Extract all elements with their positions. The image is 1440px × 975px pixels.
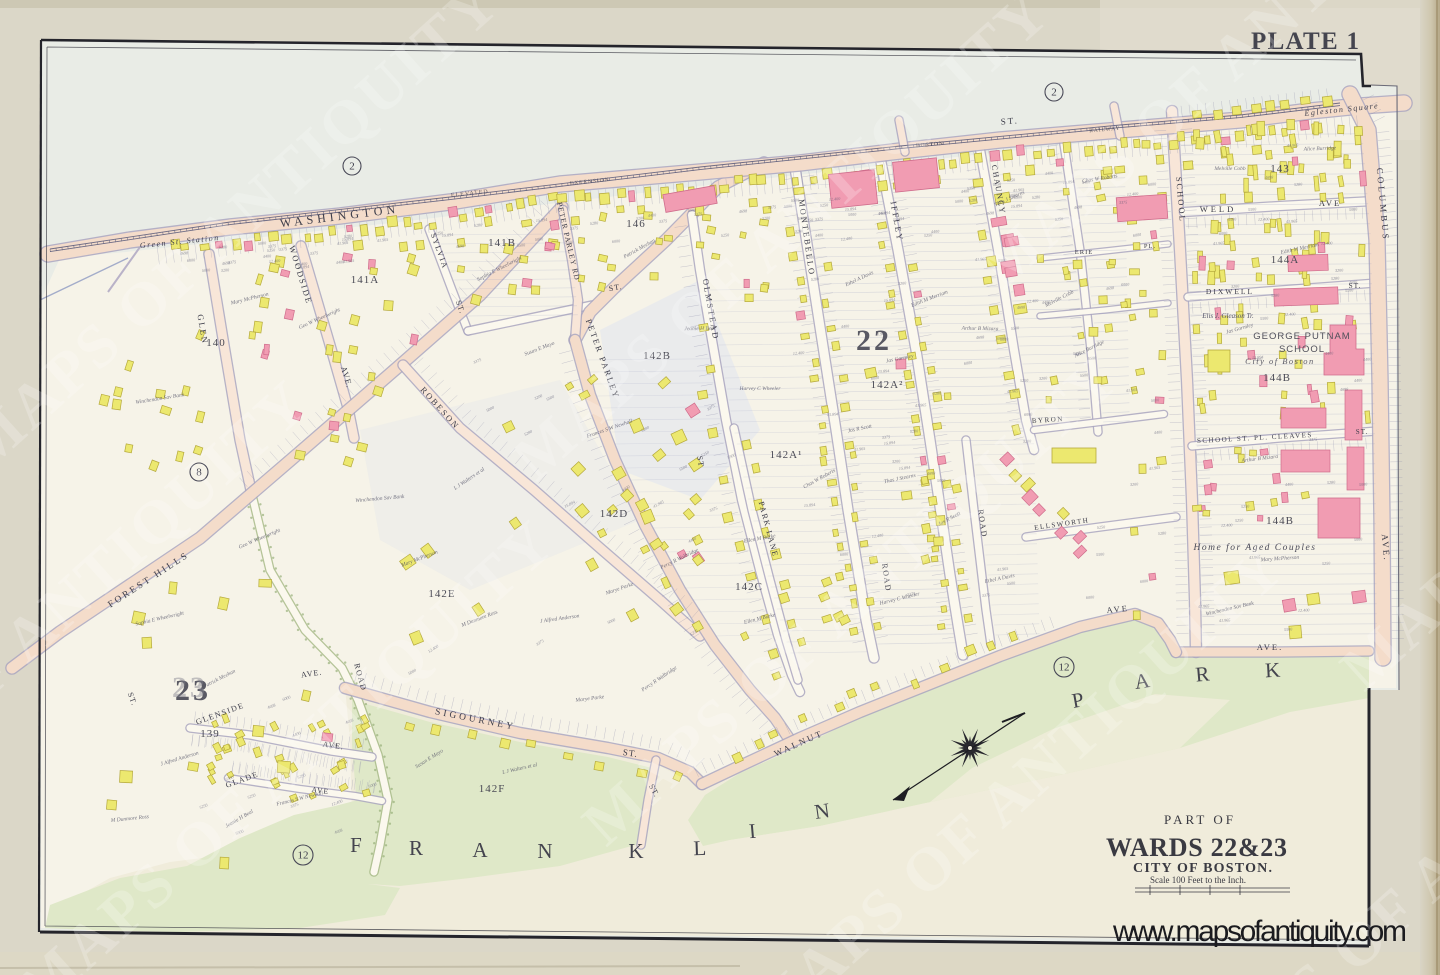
svg-text:3200: 3200 bbox=[1335, 268, 1345, 273]
svg-text:Alice Burridge: Alice Burridge bbox=[1303, 145, 1337, 152]
svg-text:140: 140 bbox=[206, 337, 226, 349]
svg-text:6000: 6000 bbox=[612, 238, 622, 244]
svg-text:K: K bbox=[1264, 658, 1280, 683]
svg-text:3375: 3375 bbox=[310, 250, 319, 256]
svg-text:3375: 3375 bbox=[279, 246, 288, 252]
svg-text:5250: 5250 bbox=[1241, 504, 1251, 509]
svg-text:5500: 5500 bbox=[688, 207, 698, 213]
svg-text:6000: 6000 bbox=[1219, 231, 1229, 236]
svg-text:4698: 4698 bbox=[1340, 387, 1350, 392]
svg-text:5000: 5000 bbox=[1354, 537, 1364, 542]
svg-text:5250: 5250 bbox=[267, 247, 277, 253]
svg-text:SCHOOL: SCHOOL bbox=[1279, 344, 1325, 355]
svg-text:4698: 4698 bbox=[976, 334, 986, 340]
svg-text:3200: 3200 bbox=[892, 459, 902, 464]
svg-text:5280: 5280 bbox=[969, 197, 979, 203]
svg-text:5280: 5280 bbox=[910, 428, 920, 434]
svg-text:4400: 4400 bbox=[1363, 357, 1373, 362]
svg-text:R: R bbox=[409, 836, 423, 860]
svg-text:5280: 5280 bbox=[474, 222, 484, 228]
svg-text:5250: 5250 bbox=[967, 185, 977, 191]
svg-text:5280: 5280 bbox=[1327, 480, 1337, 485]
svg-text:3375: 3375 bbox=[982, 592, 991, 598]
svg-text:15.894: 15.894 bbox=[804, 502, 816, 508]
svg-text:5000: 5000 bbox=[1359, 482, 1369, 487]
svg-text:4400: 4400 bbox=[931, 229, 940, 234]
svg-text:A: A bbox=[472, 838, 488, 862]
svg-text:ST.: ST. bbox=[1356, 428, 1368, 436]
svg-text:WELD: WELD bbox=[1200, 204, 1237, 214]
svg-text:5500: 5500 bbox=[1248, 207, 1258, 212]
svg-text:5000: 5000 bbox=[1151, 397, 1161, 403]
svg-text:5500: 5500 bbox=[1096, 552, 1106, 557]
svg-text:4400: 4400 bbox=[1154, 429, 1164, 435]
svg-text:142A¹: 142A¹ bbox=[770, 449, 803, 461]
svg-text:3200: 3200 bbox=[898, 280, 908, 286]
svg-text:4698: 4698 bbox=[986, 210, 996, 216]
svg-text:41.965: 41.965 bbox=[1287, 142, 1299, 148]
svg-text:5000: 5000 bbox=[955, 198, 965, 204]
svg-text:12.400: 12.400 bbox=[1321, 240, 1334, 246]
svg-text:3375: 3375 bbox=[659, 218, 668, 224]
svg-text:144A: 144A bbox=[1271, 254, 1299, 266]
svg-text:139: 139 bbox=[200, 728, 220, 740]
svg-text:4698: 4698 bbox=[739, 208, 749, 214]
svg-text:4400: 4400 bbox=[1042, 299, 1052, 305]
svg-text:41.965: 41.965 bbox=[915, 402, 927, 408]
svg-text:4400: 4400 bbox=[648, 212, 658, 218]
svg-text:4698: 4698 bbox=[456, 243, 466, 249]
svg-text:ST.: ST. bbox=[1348, 281, 1361, 290]
svg-text:6000: 6000 bbox=[1148, 181, 1158, 187]
svg-text:4400: 4400 bbox=[1285, 482, 1295, 487]
svg-text:Melville Cobb: Melville Cobb bbox=[1213, 166, 1246, 172]
svg-text:23: 23 bbox=[172, 671, 208, 704]
svg-text:5250: 5250 bbox=[1097, 524, 1107, 530]
svg-text:142C: 142C bbox=[735, 581, 763, 593]
svg-text:Arthur B Mizara: Arthur B Mizara bbox=[961, 326, 999, 333]
svg-text:3200: 3200 bbox=[1130, 481, 1140, 487]
svg-text:12.400: 12.400 bbox=[1221, 522, 1234, 528]
svg-text:142D: 142D bbox=[600, 508, 628, 520]
svg-text:6000: 6000 bbox=[1121, 282, 1130, 287]
svg-text:141A: 141A bbox=[351, 274, 379, 286]
svg-text:12: 12 bbox=[298, 850, 309, 862]
svg-text:2: 2 bbox=[1051, 87, 1057, 99]
svg-text:ERIE: ERIE bbox=[1075, 249, 1093, 256]
svg-text:41.965: 41.965 bbox=[1213, 240, 1225, 246]
svg-text:Harvey C Wheeler: Harvey C Wheeler bbox=[739, 386, 782, 392]
svg-text:5500: 5500 bbox=[1260, 316, 1270, 321]
svg-text:WARDS 22&23: WARDS 22&23 bbox=[1106, 833, 1288, 862]
svg-text:22: 22 bbox=[856, 324, 892, 357]
svg-text:DIXWELL: DIXWELL bbox=[1206, 287, 1254, 296]
svg-text:144B: 144B bbox=[1266, 515, 1294, 527]
svg-text:City of Boston: City of Boston bbox=[1245, 356, 1315, 366]
svg-text:Scale 100 Feet to the Inch.: Scale 100 Feet to the Inch. bbox=[1150, 875, 1246, 885]
svg-text:5280: 5280 bbox=[1271, 293, 1281, 298]
svg-text:CITY OF BOSTON.: CITY OF BOSTON. bbox=[1133, 861, 1273, 876]
svg-text:4400: 4400 bbox=[1354, 378, 1364, 383]
svg-text:PL.: PL. bbox=[1144, 243, 1156, 250]
svg-text:12.400: 12.400 bbox=[1258, 216, 1271, 222]
svg-text:5000: 5000 bbox=[535, 236, 545, 242]
svg-text:5250: 5250 bbox=[1322, 561, 1332, 566]
svg-text:5000: 5000 bbox=[1349, 207, 1359, 212]
svg-text:142A²: 142A² bbox=[871, 379, 904, 391]
svg-text:141B: 141B bbox=[488, 237, 516, 249]
svg-text:41.965: 41.965 bbox=[1286, 218, 1298, 224]
svg-text:5500: 5500 bbox=[517, 242, 527, 248]
svg-text:4698: 4698 bbox=[927, 471, 937, 476]
svg-text:12.400: 12.400 bbox=[1284, 311, 1297, 317]
svg-text:5280: 5280 bbox=[1294, 182, 1304, 187]
svg-text:AVE: AVE bbox=[1319, 198, 1341, 208]
svg-text:F: F bbox=[350, 833, 362, 857]
svg-text:143: 143 bbox=[1270, 163, 1290, 175]
svg-text:5280: 5280 bbox=[933, 390, 943, 396]
svg-text:5000: 5000 bbox=[1009, 192, 1019, 198]
svg-text:144B: 144B bbox=[1263, 372, 1291, 384]
svg-text:5500: 5500 bbox=[1007, 580, 1017, 586]
svg-text:5280: 5280 bbox=[1158, 530, 1168, 536]
svg-text:Elis J. Gleason Tr.: Elis J. Gleason Tr. bbox=[1201, 312, 1254, 320]
svg-text:4400: 4400 bbox=[1325, 351, 1335, 356]
svg-text:5280: 5280 bbox=[590, 220, 600, 226]
svg-text:12.400: 12.400 bbox=[1298, 607, 1311, 613]
svg-text:N: N bbox=[537, 839, 552, 863]
svg-text:L: L bbox=[693, 836, 707, 860]
svg-text:41.965: 41.965 bbox=[1007, 388, 1019, 394]
svg-text:GEORGE PUTNAM: GEORGE PUTNAM bbox=[1253, 331, 1350, 342]
svg-text:AVE.: AVE. bbox=[1257, 642, 1284, 652]
svg-text:4400: 4400 bbox=[841, 323, 851, 329]
svg-text:6000: 6000 bbox=[840, 551, 850, 557]
svg-text:3375: 3375 bbox=[882, 434, 891, 440]
svg-text:146: 146 bbox=[626, 218, 646, 230]
svg-text:6000: 6000 bbox=[1086, 594, 1096, 600]
svg-text:5500: 5500 bbox=[1284, 627, 1294, 632]
svg-text:4698: 4698 bbox=[1017, 304, 1027, 310]
svg-text:www.mapsofantiquity.com: www.mapsofantiquity.com bbox=[1112, 915, 1407, 948]
svg-text:5280: 5280 bbox=[1331, 276, 1341, 281]
svg-text:4698: 4698 bbox=[1265, 175, 1275, 180]
svg-text:5250: 5250 bbox=[1235, 518, 1245, 523]
svg-text:15.894: 15.894 bbox=[878, 368, 890, 374]
svg-text:5500: 5500 bbox=[1228, 217, 1238, 222]
svg-text:15.894: 15.894 bbox=[827, 411, 839, 417]
svg-text:5250: 5250 bbox=[1020, 378, 1029, 383]
svg-text:12: 12 bbox=[1059, 662, 1070, 674]
svg-text:142F: 142F bbox=[479, 783, 506, 795]
svg-text:ST.: ST. bbox=[1000, 115, 1019, 127]
svg-text:PART OF: PART OF bbox=[1164, 812, 1236, 827]
